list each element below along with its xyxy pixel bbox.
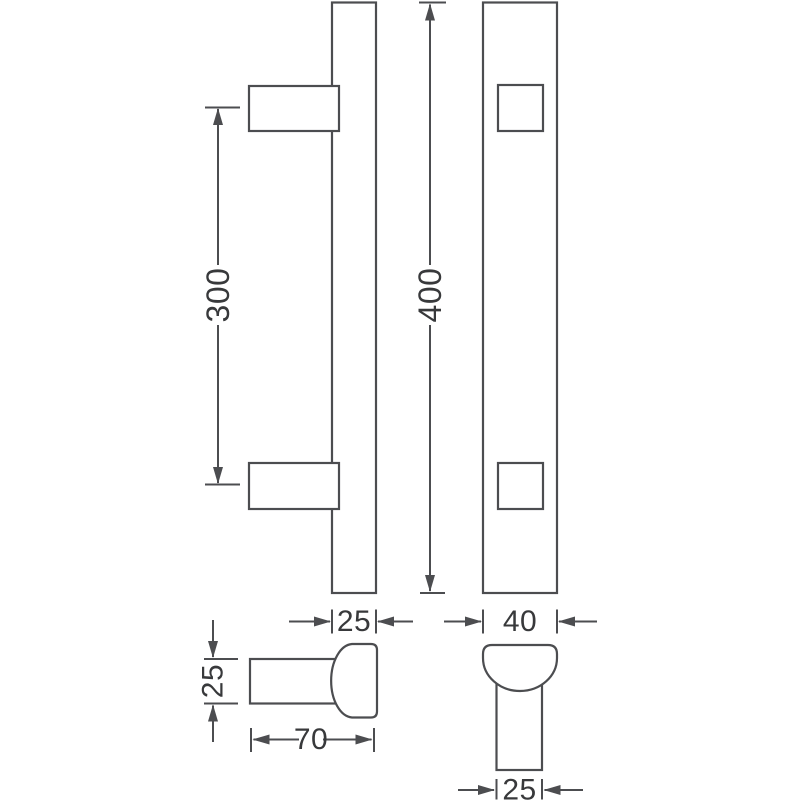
front-view-upper-base <box>498 85 543 131</box>
drawing-background <box>0 0 800 800</box>
detail-side-arm <box>250 659 342 704</box>
dim-label-projection: 70 <box>294 723 328 756</box>
front-view-lower-base <box>498 463 543 509</box>
technical-drawing-canvas: 300 400 25 40 25 70 25 <box>0 0 800 800</box>
dim-label-fixing-centres: 300 <box>200 268 236 323</box>
side-view-lower-arm <box>249 463 339 509</box>
pull-handle-dimension-drawing: 300 400 25 40 25 70 25 <box>0 0 800 800</box>
dim-label-arm-height: 25 <box>197 664 230 698</box>
dim-label-bar-depth: 25 <box>337 605 371 638</box>
detail-side-bar-section <box>331 644 377 718</box>
dim-label-arm-width: 25 <box>502 774 536 800</box>
side-view-upper-arm <box>249 86 339 131</box>
dim-label-overall-length: 400 <box>412 268 448 323</box>
dim-label-bar-width: 40 <box>503 605 537 638</box>
